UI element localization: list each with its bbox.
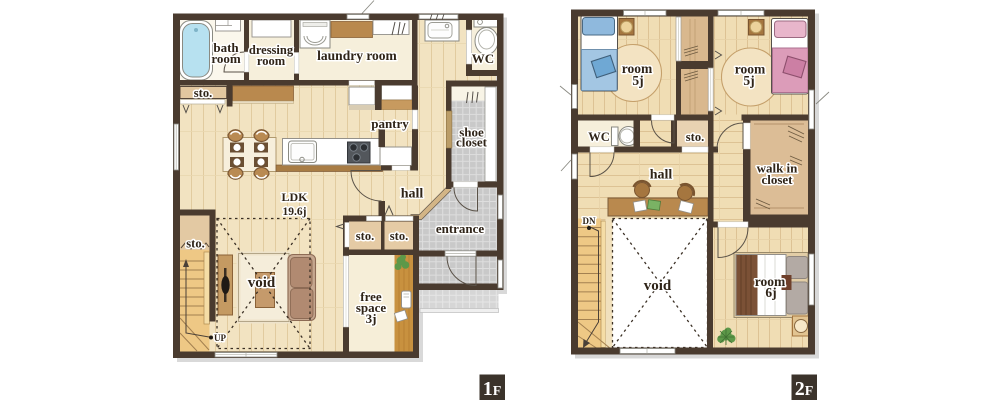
svg-text:WC: WC [588, 130, 610, 144]
svg-text:LDK: LDK [281, 190, 308, 204]
svg-text:UP: UP [214, 333, 226, 343]
svg-text:closet: closet [456, 134, 488, 149]
svg-text:3j: 3j [366, 311, 377, 326]
svg-text:pantry: pantry [371, 116, 409, 131]
svg-text:hall: hall [650, 168, 673, 183]
svg-text:6j: 6j [765, 285, 776, 300]
svg-text:sto.: sto. [686, 130, 704, 144]
svg-text:entrance: entrance [436, 221, 485, 236]
svg-text:5j: 5j [743, 73, 754, 88]
svg-text:sto.: sto. [186, 237, 204, 251]
svg-text:sto.: sto. [390, 229, 408, 243]
svg-text:sto.: sto. [356, 229, 374, 243]
svg-text:room: room [211, 51, 241, 66]
svg-text:DN: DN [583, 216, 596, 226]
svg-text:sto.: sto. [194, 86, 212, 100]
svg-text:hall: hall [401, 187, 424, 202]
svg-text:19.6j: 19.6j [283, 206, 307, 218]
svg-text:room: room [257, 54, 286, 68]
svg-text:laundry room: laundry room [317, 48, 397, 63]
svg-text:WC: WC [472, 51, 494, 66]
svg-text:void: void [248, 275, 276, 291]
svg-text:closet: closet [761, 172, 793, 187]
svg-text:5j: 5j [632, 73, 643, 88]
svg-text:void: void [644, 278, 672, 294]
